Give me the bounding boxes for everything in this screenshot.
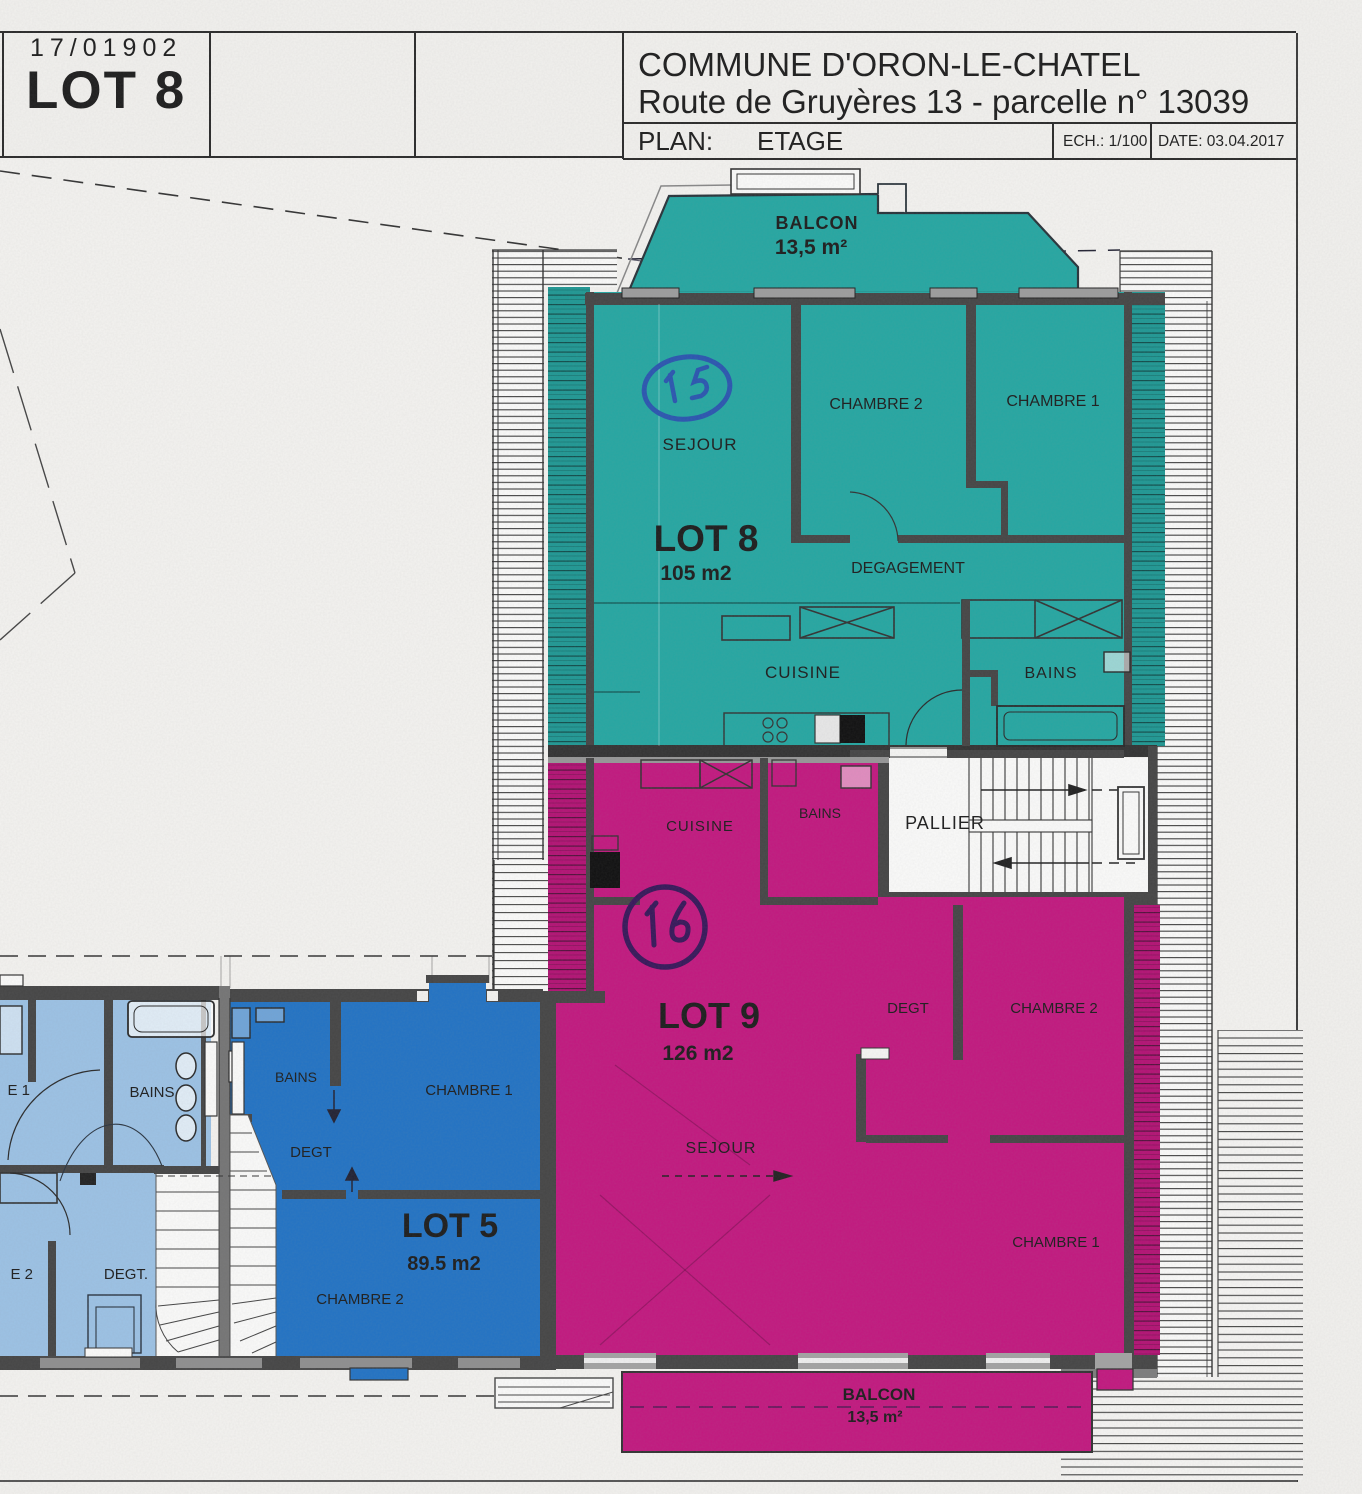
svg-text:105 m2: 105 m2 bbox=[660, 562, 731, 585]
svg-text:LOT 8: LOT 8 bbox=[26, 61, 186, 120]
svg-text:DEGT: DEGT bbox=[887, 1000, 929, 1017]
svg-text:SEJOUR: SEJOUR bbox=[663, 435, 738, 454]
svg-text:CHAMBRE 2: CHAMBRE 2 bbox=[1010, 1000, 1098, 1017]
svg-text:LOT 5: LOT 5 bbox=[402, 1207, 498, 1245]
svg-text:COMMUNE D'ORON-LE-CHATEL: COMMUNE D'ORON-LE-CHATEL bbox=[638, 46, 1141, 83]
svg-text:CHAMBRE 1: CHAMBRE 1 bbox=[425, 1082, 513, 1099]
svg-text:13,5 m²: 13,5 m² bbox=[847, 1409, 902, 1426]
svg-text:BAINS: BAINS bbox=[799, 805, 841, 821]
svg-text:DEGT.: DEGT. bbox=[104, 1266, 148, 1283]
svg-text:Route de Gruyères 13 - parcell: Route de Gruyères 13 - parcelle n° 13039 bbox=[638, 83, 1249, 120]
svg-text:PLAN:: PLAN: bbox=[638, 126, 713, 156]
svg-text:CUISINE: CUISINE bbox=[765, 663, 841, 682]
svg-text:SEJOUR: SEJOUR bbox=[686, 1140, 757, 1157]
svg-text:ETAGE: ETAGE bbox=[757, 126, 843, 156]
svg-text:ECH.: 1/100: ECH.: 1/100 bbox=[1063, 133, 1148, 150]
svg-text:89.5 m2: 89.5 m2 bbox=[407, 1253, 480, 1275]
svg-text:13,5 m²: 13,5 m² bbox=[775, 236, 847, 259]
svg-text:CHAMBRE 1: CHAMBRE 1 bbox=[1012, 1234, 1100, 1251]
svg-text:PALLIER: PALLIER bbox=[905, 813, 985, 833]
svg-text:DEGAGEMENT: DEGAGEMENT bbox=[851, 560, 965, 577]
svg-text:BALCON: BALCON bbox=[843, 1385, 916, 1404]
svg-text:DEGT: DEGT bbox=[290, 1144, 332, 1161]
svg-text:LOT 9: LOT 9 bbox=[658, 995, 760, 1036]
svg-text:BAINS: BAINS bbox=[1024, 665, 1077, 682]
svg-text:BAINS: BAINS bbox=[129, 1084, 174, 1101]
svg-text:BAINS: BAINS bbox=[275, 1069, 317, 1085]
svg-text:17/01902: 17/01902 bbox=[30, 34, 182, 62]
svg-text:LOT 8: LOT 8 bbox=[654, 518, 759, 559]
svg-text:E 1: E 1 bbox=[7, 1082, 30, 1099]
svg-text:DATE: 03.04.2017: DATE: 03.04.2017 bbox=[1158, 133, 1284, 150]
svg-text:CHAMBRE 2: CHAMBRE 2 bbox=[316, 1291, 404, 1308]
svg-text:CUISINE: CUISINE bbox=[666, 818, 734, 835]
svg-text:CHAMBRE 1: CHAMBRE 1 bbox=[1006, 393, 1099, 410]
svg-text:CHAMBRE 2: CHAMBRE 2 bbox=[829, 396, 922, 413]
svg-text:BALCON: BALCON bbox=[776, 213, 859, 233]
svg-text:E 2: E 2 bbox=[10, 1266, 33, 1283]
svg-text:126 m2: 126 m2 bbox=[662, 1042, 733, 1065]
